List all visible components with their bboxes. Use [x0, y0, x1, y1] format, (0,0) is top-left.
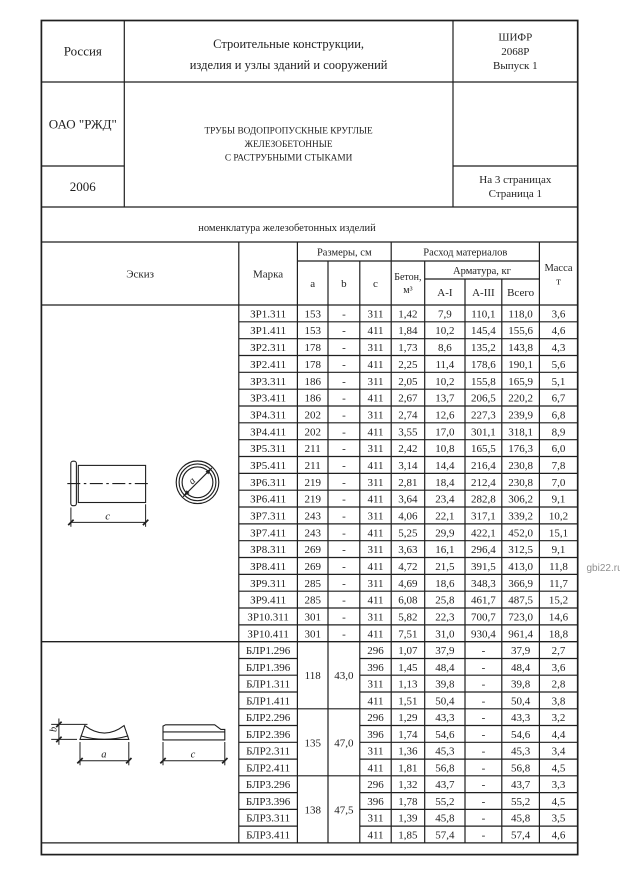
svg-text:2,7: 2,7 — [552, 645, 566, 657]
svg-text:12,6: 12,6 — [435, 409, 455, 421]
svg-text:БЛР1.396: БЛР1.396 — [246, 662, 291, 674]
svg-text:6,7: 6,7 — [552, 393, 566, 405]
svg-text:202: 202 — [304, 409, 321, 421]
svg-text:-: - — [342, 561, 346, 573]
svg-text:2,8: 2,8 — [552, 679, 566, 691]
svg-text:Страница 1: Страница 1 — [489, 188, 542, 200]
svg-text:c: c — [373, 278, 378, 290]
svg-text:155,8: 155,8 — [471, 376, 496, 388]
svg-text:a: a — [187, 476, 198, 487]
svg-text:43,3: 43,3 — [435, 712, 455, 724]
svg-text:396: 396 — [367, 662, 384, 674]
svg-text:А-I: А-I — [437, 287, 453, 299]
svg-text:211: 211 — [305, 443, 321, 455]
svg-text:43,3: 43,3 — [511, 712, 531, 724]
svg-text:219: 219 — [304, 494, 321, 506]
svg-text:212,4: 212,4 — [471, 477, 496, 489]
svg-text:45,3: 45,3 — [511, 746, 531, 758]
svg-text:1,07: 1,07 — [398, 645, 418, 657]
svg-text:39,8: 39,8 — [435, 679, 455, 691]
svg-text:311: 311 — [367, 611, 383, 623]
svg-text:43,7: 43,7 — [511, 779, 531, 791]
svg-text:-: - — [342, 494, 346, 506]
svg-text:3,63: 3,63 — [398, 544, 418, 556]
svg-text:413,0: 413,0 — [508, 561, 533, 573]
svg-text:56,8: 56,8 — [435, 762, 455, 774]
svg-text:2068Р: 2068Р — [501, 46, 529, 58]
svg-text:5,6: 5,6 — [552, 359, 566, 371]
svg-text:411: 411 — [367, 695, 383, 707]
svg-text:1,81: 1,81 — [398, 762, 417, 774]
svg-text:57,4: 57,4 — [435, 830, 455, 842]
svg-text:3,8: 3,8 — [552, 695, 566, 707]
svg-text:Строительные конструкции,: Строительные конструкции, — [213, 37, 364, 51]
svg-text:т: т — [556, 276, 561, 287]
svg-text:БЛР3.296: БЛР3.296 — [246, 779, 291, 791]
svg-text:461,7: 461,7 — [471, 595, 496, 607]
svg-text:6,08: 6,08 — [398, 595, 418, 607]
svg-text:391,5: 391,5 — [471, 561, 496, 573]
svg-text:230,8: 230,8 — [508, 477, 533, 489]
svg-text:9,1: 9,1 — [552, 544, 566, 556]
svg-text:700,7: 700,7 — [471, 611, 496, 623]
svg-text:37,9: 37,9 — [435, 645, 455, 657]
svg-text:411: 411 — [367, 762, 383, 774]
svg-text:411: 411 — [367, 494, 383, 506]
svg-text:-: - — [342, 578, 346, 590]
svg-text:2,25: 2,25 — [398, 359, 418, 371]
svg-text:11,7: 11,7 — [549, 578, 568, 590]
svg-text:216,4: 216,4 — [471, 460, 496, 472]
svg-text:1,13: 1,13 — [398, 679, 418, 691]
svg-text:296: 296 — [367, 712, 384, 724]
svg-text:7,0: 7,0 — [552, 477, 566, 489]
svg-text:номенклатура железобетонных из: номенклатура железобетонных изделий — [198, 223, 376, 234]
svg-text:220,2: 220,2 — [508, 393, 533, 405]
svg-text:1,39: 1,39 — [398, 813, 418, 825]
svg-text:2,05: 2,05 — [398, 376, 418, 388]
svg-text:15,1: 15,1 — [549, 527, 568, 539]
svg-text:176,3: 176,3 — [508, 443, 533, 455]
svg-text:ШИФР: ШИФР — [498, 32, 532, 44]
svg-text:-: - — [482, 830, 486, 842]
svg-text:15,2: 15,2 — [549, 595, 568, 607]
svg-text:10,2: 10,2 — [549, 510, 568, 522]
svg-text:-: - — [342, 409, 346, 421]
svg-text:ЖЕЛЕЗОБЕТОННЫЕ: ЖЕЛЕЗОБЕТОННЫЕ — [245, 140, 333, 150]
svg-text:4,5: 4,5 — [552, 796, 566, 808]
svg-text:-: - — [482, 712, 486, 724]
svg-text:9,1: 9,1 — [552, 494, 566, 506]
svg-text:311: 311 — [367, 813, 383, 825]
svg-text:Марка: Марка — [253, 268, 283, 280]
svg-text:47,5: 47,5 — [334, 804, 354, 816]
svg-text:3,14: 3,14 — [398, 460, 418, 472]
svg-text:А-III: А-III — [472, 287, 495, 299]
svg-text:-: - — [342, 325, 346, 337]
svg-text:138: 138 — [304, 804, 321, 816]
svg-text:-: - — [342, 595, 346, 607]
svg-text:6,0: 6,0 — [552, 443, 566, 455]
svg-text:1,73: 1,73 — [398, 342, 418, 354]
svg-text:С РАСТРУБНЫМИ СТЫКАМИ: С РАСТРУБНЫМИ СТЫКАМИ — [225, 154, 353, 164]
svg-text:ЗР8.411: ЗР8.411 — [250, 561, 286, 573]
svg-text:54,6: 54,6 — [435, 729, 455, 741]
svg-text:4,6: 4,6 — [552, 830, 566, 842]
svg-text:6,8: 6,8 — [552, 409, 566, 421]
svg-text:ЗР1.311: ЗР1.311 — [250, 308, 286, 320]
svg-text:ЗР1.411: ЗР1.411 — [250, 325, 286, 337]
svg-text:16,1: 16,1 — [435, 544, 454, 556]
svg-text:55,2: 55,2 — [435, 796, 454, 808]
svg-text:317,1: 317,1 — [471, 510, 496, 522]
svg-text:311: 311 — [367, 376, 383, 388]
svg-text:452,0: 452,0 — [508, 527, 533, 539]
svg-text:Размеры, см: Размеры, см — [317, 247, 372, 258]
svg-text:45,8: 45,8 — [435, 813, 455, 825]
svg-text:411: 411 — [367, 628, 383, 640]
svg-text:На 3 страницах: На 3 страницах — [479, 174, 552, 186]
svg-text:-: - — [342, 611, 346, 623]
svg-text:165,9: 165,9 — [508, 376, 533, 388]
svg-text:-: - — [482, 729, 486, 741]
svg-text:227,3: 227,3 — [471, 409, 496, 421]
svg-text:23,4: 23,4 — [435, 494, 455, 506]
svg-text:110,1: 110,1 — [471, 308, 495, 320]
svg-text:422,1: 422,1 — [471, 527, 496, 539]
svg-text:21,5: 21,5 — [435, 561, 455, 573]
svg-text:ЗР4.411: ЗР4.411 — [250, 426, 286, 438]
svg-text:145,4: 145,4 — [471, 325, 496, 337]
svg-text:7,51: 7,51 — [398, 628, 417, 640]
svg-text:a: a — [310, 278, 315, 290]
svg-text:202: 202 — [304, 426, 321, 438]
svg-text:5,82: 5,82 — [398, 611, 417, 623]
svg-text:-: - — [342, 510, 346, 522]
svg-text:3,3: 3,3 — [552, 779, 566, 791]
svg-text:55,2: 55,2 — [511, 796, 530, 808]
svg-text:301: 301 — [304, 611, 321, 623]
svg-text:ЗР10.411: ЗР10.411 — [247, 628, 288, 640]
svg-text:339,2: 339,2 — [508, 510, 533, 522]
svg-text:135,2: 135,2 — [471, 342, 496, 354]
svg-text:ЗР10.311: ЗР10.311 — [247, 611, 288, 623]
svg-text:-: - — [482, 679, 486, 691]
svg-text:11,4: 11,4 — [435, 359, 454, 371]
svg-text:45,8: 45,8 — [511, 813, 531, 825]
svg-text:296: 296 — [367, 779, 384, 791]
svg-text:411: 411 — [367, 460, 383, 472]
svg-text:311: 311 — [367, 477, 383, 489]
svg-text:7,8: 7,8 — [552, 460, 566, 472]
svg-text:-: - — [342, 308, 346, 320]
svg-text:8,6: 8,6 — [438, 342, 452, 354]
svg-text:165,5: 165,5 — [471, 443, 496, 455]
svg-text:10,2: 10,2 — [435, 325, 454, 337]
svg-text:b: b — [341, 278, 347, 290]
svg-text:186: 186 — [304, 376, 321, 388]
svg-text:-: - — [482, 645, 486, 657]
svg-text:-: - — [342, 443, 346, 455]
svg-text:301,1: 301,1 — [471, 426, 496, 438]
svg-text:ЗР6.411: ЗР6.411 — [250, 494, 286, 506]
svg-text:22,3: 22,3 — [435, 611, 455, 623]
svg-text:269: 269 — [304, 544, 321, 556]
svg-text:211: 211 — [305, 460, 321, 472]
svg-text:b: b — [49, 727, 60, 732]
svg-text:2006: 2006 — [70, 179, 97, 194]
svg-text:17,0: 17,0 — [435, 426, 455, 438]
svg-text:Всего: Всего — [507, 287, 534, 299]
svg-text:ЗР2.311: ЗР2.311 — [250, 342, 286, 354]
svg-text:5,1: 5,1 — [552, 376, 566, 388]
svg-text:311: 311 — [367, 308, 383, 320]
svg-text:3,64: 3,64 — [398, 494, 418, 506]
svg-text:411: 411 — [367, 393, 383, 405]
svg-text:БЛР1.311: БЛР1.311 — [246, 679, 290, 691]
svg-text:Эскиз: Эскиз — [126, 268, 154, 280]
svg-text:1,74: 1,74 — [398, 729, 418, 741]
svg-text:54,6: 54,6 — [511, 729, 531, 741]
svg-text:-: - — [342, 477, 346, 489]
svg-text:155,6: 155,6 — [508, 325, 533, 337]
svg-text:4,4: 4,4 — [552, 729, 566, 741]
svg-text:1,42: 1,42 — [398, 308, 417, 320]
svg-text:БЛР2.396: БЛР2.396 — [246, 729, 291, 741]
svg-text:-: - — [482, 813, 486, 825]
svg-text:4,5: 4,5 — [552, 762, 566, 774]
svg-text:411: 411 — [367, 325, 383, 337]
svg-text:285: 285 — [304, 595, 321, 607]
svg-text:118: 118 — [305, 670, 322, 682]
svg-text:411: 411 — [367, 561, 383, 573]
svg-text:Арматура, кг: Арматура, кг — [453, 266, 512, 277]
svg-text:-: - — [482, 695, 486, 707]
svg-text:18,4: 18,4 — [435, 477, 455, 489]
svg-text:1,51: 1,51 — [398, 695, 417, 707]
svg-text:БЛР2.311: БЛР2.311 — [246, 746, 290, 758]
svg-text:118,0: 118,0 — [508, 308, 533, 320]
svg-text:a: a — [101, 750, 106, 761]
svg-text:ОАО "РЖД": ОАО "РЖД" — [49, 117, 117, 132]
svg-text:18,6: 18,6 — [435, 578, 455, 590]
svg-text:411: 411 — [367, 359, 383, 371]
svg-text:961,4: 961,4 — [508, 628, 533, 640]
svg-text:5,25: 5,25 — [398, 527, 418, 539]
svg-text:4,3: 4,3 — [552, 342, 566, 354]
svg-text:311: 311 — [367, 510, 383, 522]
svg-text:-: - — [482, 762, 486, 774]
svg-text:-: - — [482, 746, 486, 758]
svg-text:3,55: 3,55 — [398, 426, 418, 438]
svg-text:37,9: 37,9 — [511, 645, 531, 657]
svg-text:31,0: 31,0 — [435, 628, 455, 640]
svg-text:-: - — [482, 779, 486, 791]
svg-text:1,85: 1,85 — [398, 830, 418, 842]
svg-text:396: 396 — [367, 729, 384, 741]
svg-text:8,9: 8,9 — [552, 426, 566, 438]
svg-text:БЛР3.311: БЛР3.311 — [246, 813, 290, 825]
svg-text:7,9: 7,9 — [438, 308, 452, 320]
svg-text:-: - — [342, 460, 346, 472]
svg-text:25,8: 25,8 — [435, 595, 455, 607]
svg-text:239,9: 239,9 — [508, 409, 533, 421]
svg-text:1,78: 1,78 — [398, 796, 418, 808]
svg-text:БЛР2.411: БЛР2.411 — [246, 762, 290, 774]
svg-text:411: 411 — [367, 426, 383, 438]
svg-text:269: 269 — [304, 561, 321, 573]
svg-text:1,29: 1,29 — [398, 712, 418, 724]
svg-text:311: 311 — [367, 443, 383, 455]
svg-text:153: 153 — [304, 325, 321, 337]
svg-text:ЗР7.411: ЗР7.411 — [250, 527, 286, 539]
svg-text:190,1: 190,1 — [508, 359, 533, 371]
svg-text:3,6: 3,6 — [552, 662, 566, 674]
svg-text:411: 411 — [367, 830, 383, 842]
svg-text:311: 311 — [367, 679, 383, 691]
svg-text:301: 301 — [304, 628, 321, 640]
svg-text:14,6: 14,6 — [549, 611, 569, 623]
svg-text:-: - — [342, 393, 346, 405]
svg-text:230,8: 230,8 — [508, 460, 533, 472]
svg-text:1,32: 1,32 — [398, 779, 417, 791]
svg-text:48,4: 48,4 — [435, 662, 455, 674]
svg-text:ЗР8.311: ЗР8.311 — [250, 544, 286, 556]
svg-text:БЛР1.411: БЛР1.411 — [246, 695, 290, 707]
svg-text:487,5: 487,5 — [508, 595, 533, 607]
svg-text:3,5: 3,5 — [552, 813, 566, 825]
svg-text:2,42: 2,42 — [398, 443, 417, 455]
svg-text:2,74: 2,74 — [398, 409, 418, 421]
svg-text:-: - — [482, 662, 486, 674]
svg-text:930,4: 930,4 — [471, 628, 496, 640]
svg-text:311: 311 — [367, 409, 383, 421]
svg-text:296: 296 — [367, 645, 384, 657]
svg-text:Выпуск 1: Выпуск 1 — [493, 60, 538, 72]
svg-text:56,8: 56,8 — [511, 762, 531, 774]
svg-text:-: - — [342, 628, 346, 640]
svg-text:Бетон,: Бетон, — [394, 272, 421, 283]
svg-text:-: - — [482, 796, 486, 808]
svg-text:178: 178 — [304, 342, 321, 354]
svg-text:311: 311 — [367, 544, 383, 556]
svg-text:43,7: 43,7 — [435, 779, 455, 791]
svg-text:ЗР7.311: ЗР7.311 — [250, 510, 286, 522]
svg-text:1,36: 1,36 — [398, 746, 418, 758]
svg-text:gbi22.ru: gbi22.ru — [587, 563, 620, 574]
svg-text:-: - — [342, 544, 346, 556]
svg-text:ЗР2.411: ЗР2.411 — [250, 359, 286, 371]
svg-text:411: 411 — [367, 595, 383, 607]
svg-text:ТРУБЫ ВОДОПРОПУСКНЫЕ КРУГЛЫЕ: ТРУБЫ ВОДОПРОПУСКНЫЕ КРУГЛЫЕ — [204, 127, 373, 137]
svg-text:50,4: 50,4 — [435, 695, 455, 707]
svg-text:-: - — [342, 426, 346, 438]
svg-text:ЗР6.311: ЗР6.311 — [250, 477, 286, 489]
svg-text:Россия: Россия — [64, 44, 102, 59]
svg-text:изделия и узлы зданий и сооруж: изделия и узлы зданий и сооружений — [190, 58, 388, 72]
svg-text:45,3: 45,3 — [435, 746, 455, 758]
svg-text:18,8: 18,8 — [549, 628, 569, 640]
svg-text:296,4: 296,4 — [471, 544, 496, 556]
svg-text:3,4: 3,4 — [552, 746, 566, 758]
svg-text:-: - — [342, 376, 346, 388]
svg-text:312,5: 312,5 — [508, 544, 533, 556]
svg-text:243: 243 — [304, 527, 321, 539]
svg-text:48,4: 48,4 — [511, 662, 531, 674]
svg-text:219: 219 — [304, 477, 321, 489]
svg-text:2,67: 2,67 — [398, 393, 418, 405]
svg-text:186: 186 — [304, 393, 321, 405]
svg-text:ЗР4.311: ЗР4.311 — [250, 409, 286, 421]
svg-text:178,6: 178,6 — [471, 359, 496, 371]
svg-text:-: - — [342, 527, 346, 539]
svg-text:c: c — [191, 750, 196, 761]
svg-text:143,8: 143,8 — [508, 342, 533, 354]
svg-text:м³: м³ — [403, 285, 412, 296]
svg-text:ЗР5.411: ЗР5.411 — [250, 460, 286, 472]
svg-text:318,1: 318,1 — [508, 426, 533, 438]
svg-text:14,4: 14,4 — [435, 460, 455, 472]
svg-text:БЛР2.296: БЛР2.296 — [246, 712, 291, 724]
svg-text:243: 243 — [304, 510, 321, 522]
svg-text:29,9: 29,9 — [435, 527, 455, 539]
svg-text:4,06: 4,06 — [398, 510, 418, 522]
svg-text:135: 135 — [304, 737, 321, 749]
svg-text:Масса: Масса — [544, 263, 572, 274]
svg-text:3,2: 3,2 — [552, 712, 566, 724]
svg-text:1,84: 1,84 — [398, 325, 418, 337]
svg-text:47,0: 47,0 — [334, 737, 354, 749]
svg-text:366,9: 366,9 — [508, 578, 533, 590]
svg-text:723,0: 723,0 — [508, 611, 533, 623]
svg-text:306,2: 306,2 — [508, 494, 533, 506]
svg-text:311: 311 — [367, 746, 383, 758]
svg-text:-: - — [342, 359, 346, 371]
svg-text:ЗР3.311: ЗР3.311 — [250, 376, 286, 388]
svg-text:4,6: 4,6 — [552, 325, 566, 337]
svg-text:c: c — [105, 511, 110, 523]
svg-text:ЗР3.411: ЗР3.411 — [250, 393, 286, 405]
svg-text:3,6: 3,6 — [552, 308, 566, 320]
svg-text:22,1: 22,1 — [435, 510, 454, 522]
svg-text:2,81: 2,81 — [398, 477, 417, 489]
svg-text:396: 396 — [367, 796, 384, 808]
svg-text:411: 411 — [367, 527, 383, 539]
svg-text:10,2: 10,2 — [435, 376, 454, 388]
svg-text:-: - — [342, 342, 346, 354]
svg-text:БЛР3.396: БЛР3.396 — [246, 796, 291, 808]
svg-text:10,8: 10,8 — [435, 443, 455, 455]
svg-text:206,5: 206,5 — [471, 393, 496, 405]
svg-text:11,8: 11,8 — [549, 561, 568, 573]
svg-text:43,0: 43,0 — [334, 670, 354, 682]
svg-text:ЗР9.311: ЗР9.311 — [250, 578, 286, 590]
svg-text:ЗР5.311: ЗР5.311 — [250, 443, 286, 455]
svg-text:ЗР9.411: ЗР9.411 — [250, 595, 286, 607]
svg-text:4,72: 4,72 — [398, 561, 417, 573]
svg-text:Расход материалов: Расход материалов — [423, 247, 507, 258]
svg-text:1,45: 1,45 — [398, 662, 418, 674]
svg-text:282,8: 282,8 — [471, 494, 496, 506]
svg-text:311: 311 — [367, 578, 383, 590]
svg-text:50,4: 50,4 — [511, 695, 531, 707]
svg-text:178: 178 — [304, 359, 321, 371]
svg-text:4,69: 4,69 — [398, 578, 418, 590]
svg-text:13,7: 13,7 — [435, 393, 455, 405]
svg-text:57,4: 57,4 — [511, 830, 531, 842]
svg-text:БЛР1.296: БЛР1.296 — [246, 645, 291, 657]
svg-text:311: 311 — [367, 342, 383, 354]
